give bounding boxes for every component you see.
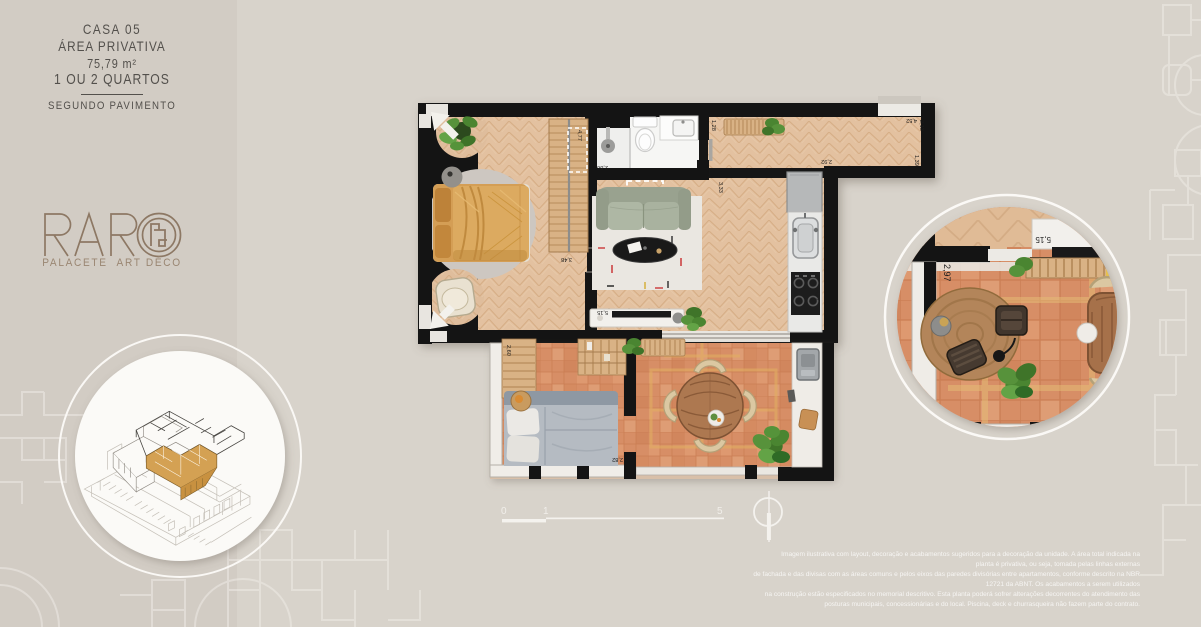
svg-text:2,60: 2,60 bbox=[505, 345, 511, 356]
svg-text:2,97: 2,97 bbox=[942, 264, 952, 282]
svg-text:1,28: 1,28 bbox=[710, 120, 716, 131]
svg-text:5,15: 5,15 bbox=[1035, 235, 1051, 244]
svg-text:2,86: 2,86 bbox=[597, 164, 608, 170]
svg-text:4,77: 4,77 bbox=[814, 290, 820, 301]
svg-text:5: 5 bbox=[717, 506, 723, 517]
svg-text:1,39: 1,39 bbox=[913, 155, 919, 166]
svg-text:3,48: 3,48 bbox=[561, 256, 572, 262]
svg-text:3,33: 3,33 bbox=[717, 182, 723, 193]
svg-text:2,13: 2,13 bbox=[918, 120, 924, 131]
svg-text:2,82: 2,82 bbox=[612, 456, 623, 462]
svg-text:2,92: 2,92 bbox=[821, 158, 832, 164]
svg-text:4,77: 4,77 bbox=[576, 130, 582, 141]
svg-text:1: 1 bbox=[543, 506, 549, 517]
svg-text:5,15: 5,15 bbox=[597, 309, 608, 315]
svg-text:4,52: 4,52 bbox=[906, 117, 917, 123]
svg-text:0: 0 bbox=[501, 506, 507, 517]
